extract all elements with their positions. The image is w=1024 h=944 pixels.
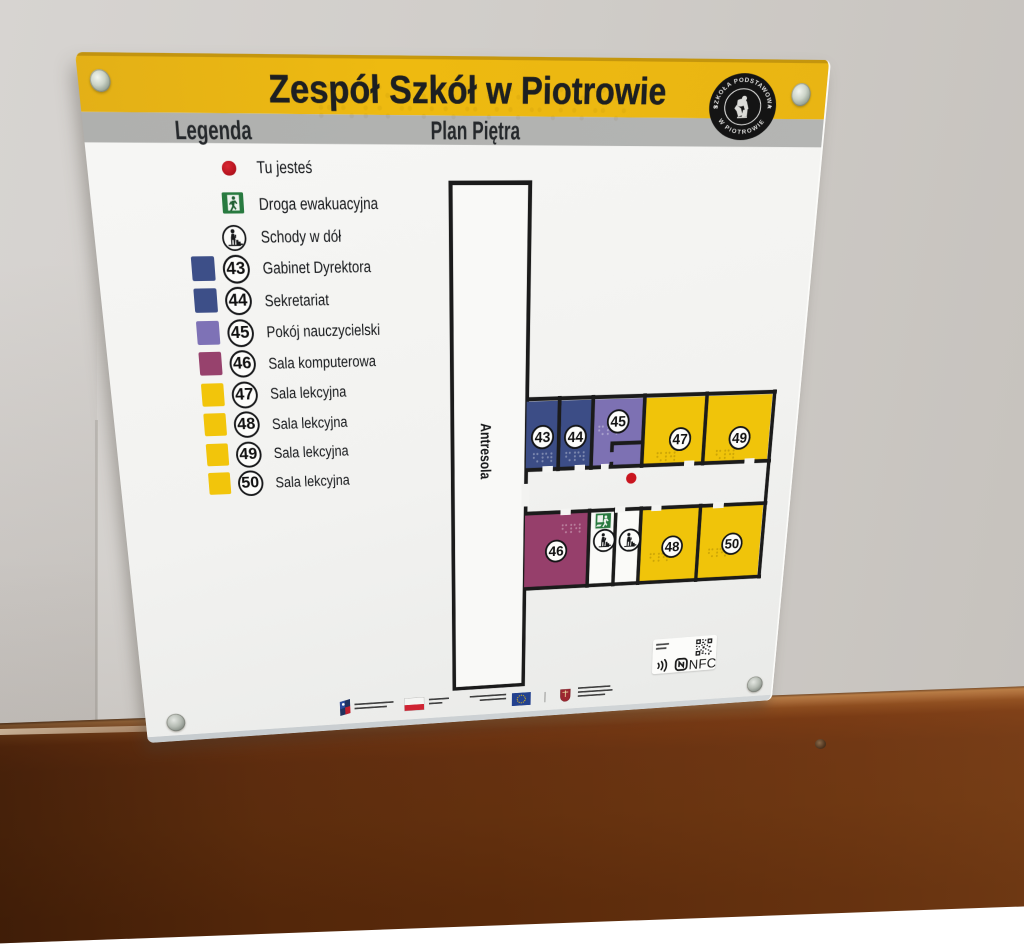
svg-text:43: 43 <box>535 428 551 445</box>
svg-text:45: 45 <box>610 413 626 430</box>
svg-text:46: 46 <box>548 543 563 559</box>
svg-text:Antresola: Antresola <box>477 423 494 480</box>
svg-text:49: 49 <box>732 429 748 446</box>
svg-text:44: 44 <box>567 428 583 445</box>
svg-text:47: 47 <box>672 431 688 448</box>
svg-text:48: 48 <box>664 539 680 555</box>
svg-text:50: 50 <box>724 536 740 552</box>
